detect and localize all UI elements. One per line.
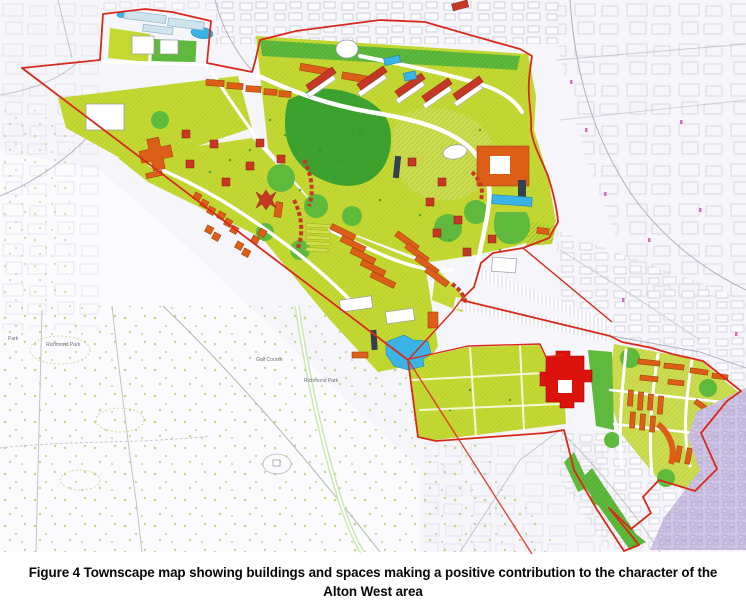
document-page: Park Richmond Park Golf Course Richmond … xyxy=(0,0,746,612)
map-label-park: Park xyxy=(8,336,19,342)
figure-caption-line-2: Alton West area xyxy=(0,583,746,602)
landmark-building xyxy=(540,351,592,408)
map-label-richmond-park-2: Richmond Park xyxy=(304,378,339,384)
map-label-golf-course: Golf Course xyxy=(256,357,283,363)
figure-caption-line-1: Figure 4 Townscape map showing buildings… xyxy=(0,564,746,583)
figure-caption: Figure 4 Townscape map showing buildings… xyxy=(0,555,746,602)
map-label-richmond-park-1: Richmond Park xyxy=(46,342,81,348)
figure-4: Park Richmond Park Golf Course Richmond … xyxy=(0,0,746,602)
townscape-map: Park Richmond Park Golf Course Richmond … xyxy=(0,0,746,555)
townscape-map-svg: Park Richmond Park Golf Course Richmond … xyxy=(0,0,746,555)
